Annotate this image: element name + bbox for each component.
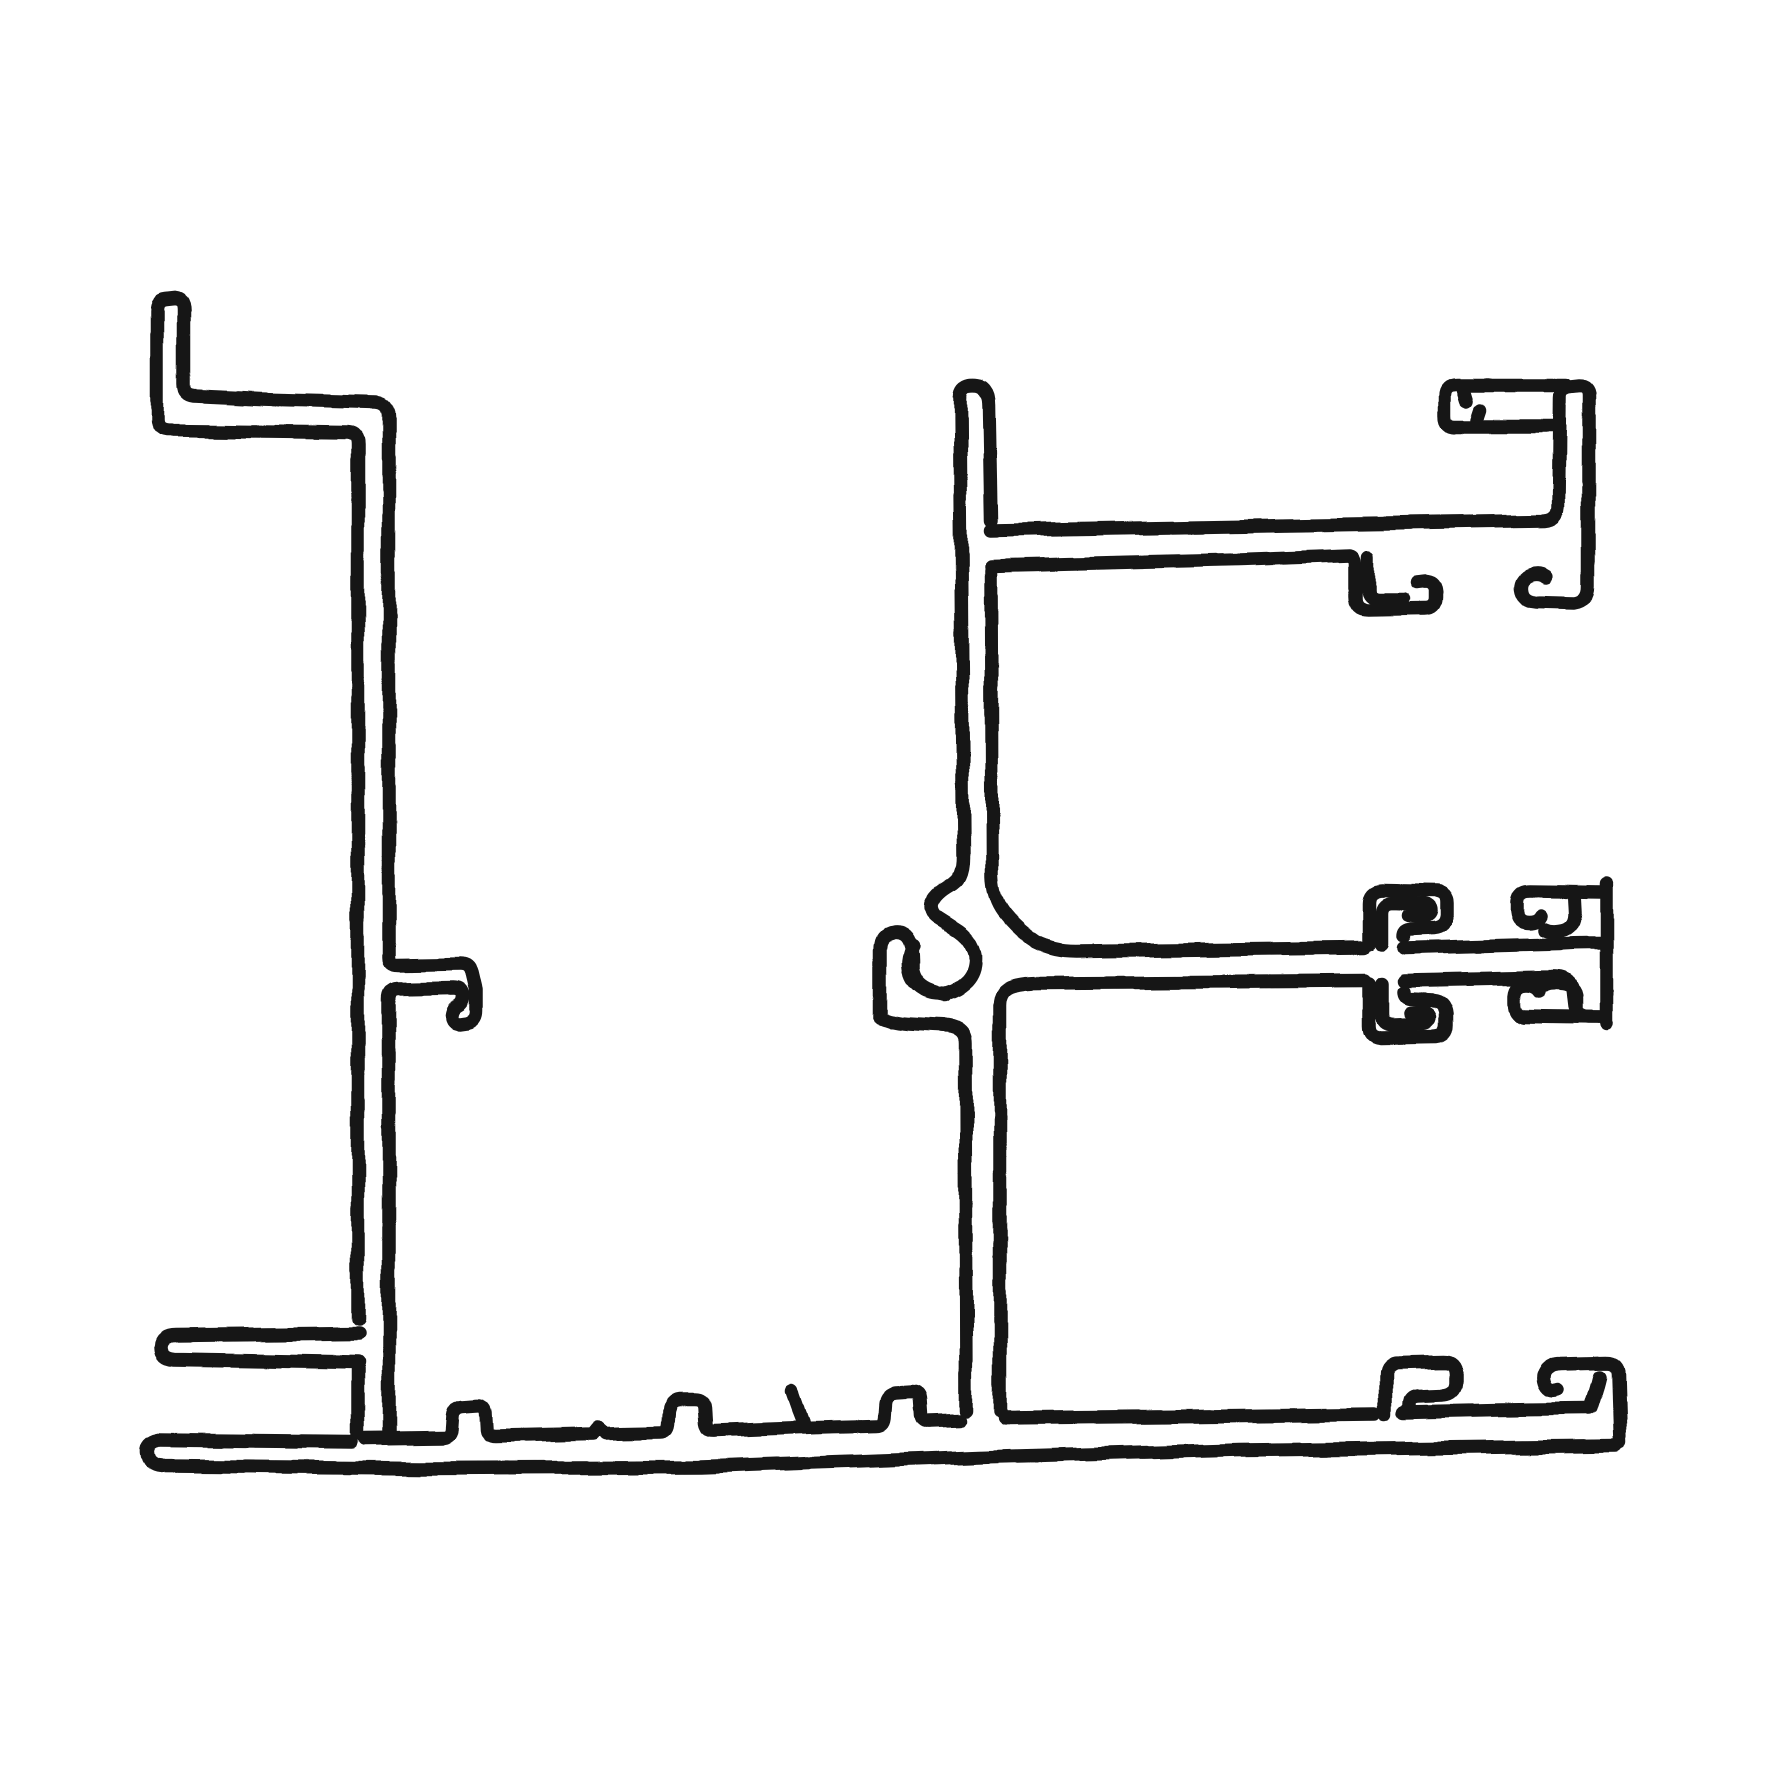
top-arm-bead-hook-inner [1368, 557, 1404, 599]
lower-right-wall-and-clip-arm-bottom [1000, 981, 1364, 1412]
mid-right-top-barb [1545, 893, 1574, 932]
baseline-top-edge-left [158, 1440, 352, 1442]
bottom-right-end-inner-wall [1591, 1377, 1600, 1408]
right-upright-right-wall-to-clip-arm [991, 570, 1364, 951]
boss-channel-bottom-and-lower-left-wall [881, 1018, 966, 1410]
baseline-top-edge-far-right [1404, 1409, 1589, 1412]
top-arm-pocket-barb-2 [1477, 410, 1480, 419]
boss-j-hook [881, 933, 945, 1016]
canvas [0, 0, 1772, 1772]
right-upright-left-wall-boss-curl [909, 397, 975, 994]
ink-stroke-group [147, 299, 1620, 1468]
mid-right-bottom-barb [1546, 983, 1576, 1011]
left-upright-outer-wall [157, 299, 358, 1320]
baseline-top-edge-mid-with-ribs [366, 1392, 960, 1439]
clip-arm-top-right-segment [1404, 943, 1601, 948]
baseline-top-edge-right [1004, 1414, 1376, 1418]
left-upright-inner-wall-with-hook [175, 299, 476, 1432]
extrusion-profile-cross-section-drawing [0, 0, 1772, 1772]
top-arm-pocket-barb-1 [1463, 391, 1466, 401]
mid-right-top-band-with-curl [1517, 891, 1601, 923]
left-bottom-finger [161, 1334, 358, 1362]
mid-right-bottom-band [1524, 1016, 1600, 1017]
